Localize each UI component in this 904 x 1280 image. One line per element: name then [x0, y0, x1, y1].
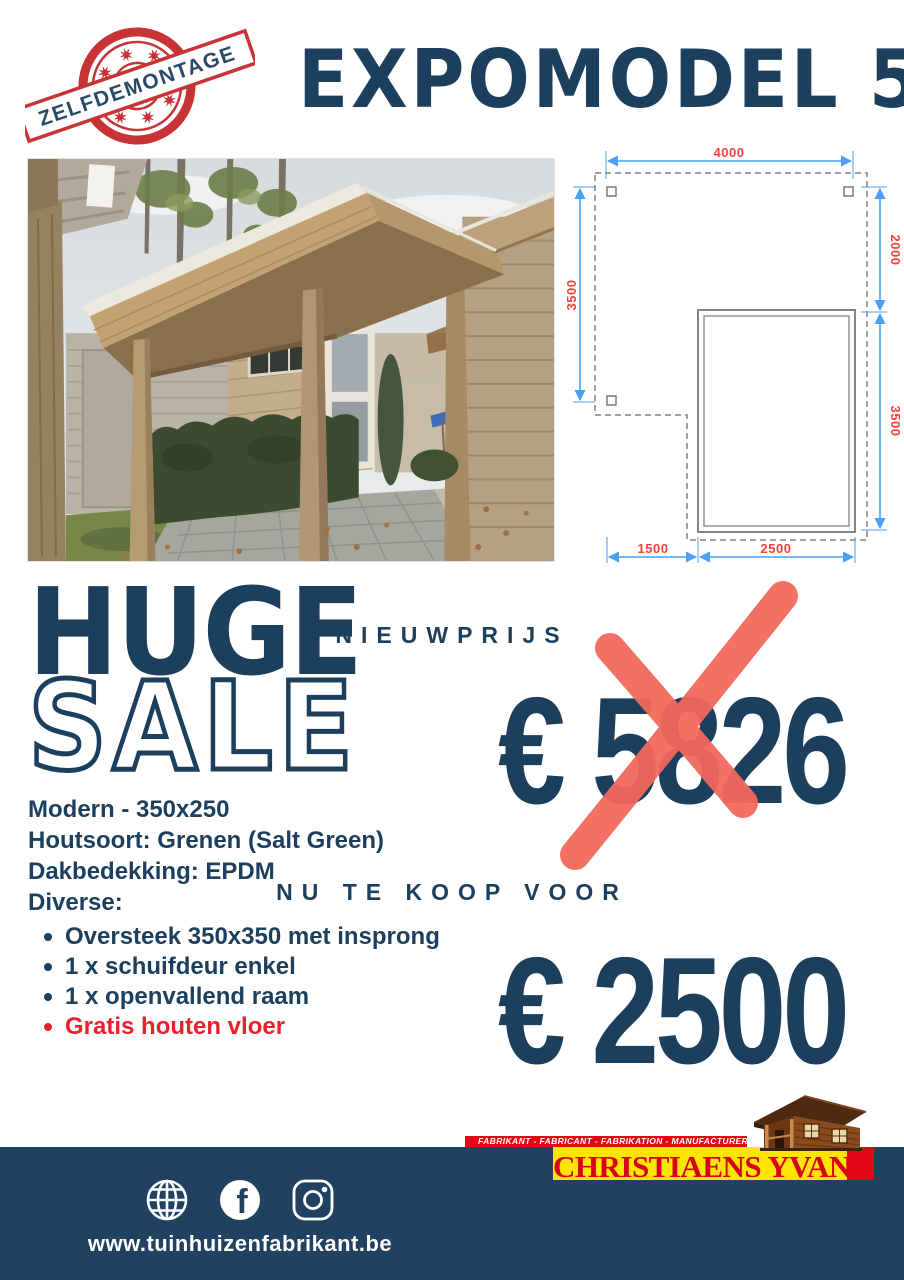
old-price: € 5826 [496, 675, 848, 827]
dim-bottom-left-label: 1500 [638, 541, 669, 556]
product-specs: Modern - 350x250 Houtsoort: Grenen (Salt… [28, 794, 458, 1042]
brand-strip: FABRIKANT - FABRICANT - FABRIKATION - MA… [465, 1136, 747, 1147]
footer-social-icons: f [122, 1172, 358, 1228]
brand-name: CHRISTIAENS YVAN [553, 1149, 851, 1184]
brand-house-illustration [748, 1092, 870, 1154]
globe-icon[interactable] [148, 1181, 186, 1219]
dim-bottom-right-label: 2500 [761, 541, 792, 556]
spec-bullet-list: Oversteek 350x350 met insprong 1 x schui… [28, 922, 458, 1042]
spec-bullet-free-floor: Gratis houten vloer [28, 1012, 458, 1042]
bullet-dot [44, 993, 52, 1001]
bullet-dot [44, 1023, 52, 1031]
website-url[interactable]: www.tuinhuizenfabrikant.be [0, 1231, 480, 1257]
building-outer-wall [698, 310, 855, 532]
spec-model: Modern - 350x250 [28, 794, 458, 825]
sale-headline-sale: SALE [28, 666, 359, 788]
old-price-label: NIEUWPRIJS [0, 622, 904, 649]
stamp-text: ZELFDEMONTAGE [36, 42, 239, 131]
flyer-page: ZELFDEMONTAGE EXPOMODEL 5 [0, 0, 904, 1280]
photo-illustration [28, 159, 554, 561]
new-price-label: NU TE KOOP VOOR [0, 879, 904, 906]
dim-left-label: 3500 [565, 280, 579, 311]
spec-wood: Houtsoort: Grenen (Salt Green) [28, 825, 458, 856]
foreground-post [28, 201, 66, 561]
svg-text:f: f [236, 1183, 248, 1221]
product-photo [27, 158, 555, 562]
spec-bullet: 1 x openvallend raam [28, 982, 458, 1012]
spec-bullet: 1 x schuifdeur enkel [28, 952, 458, 982]
bullet-dot [44, 933, 52, 941]
spec-bullet: Oversteek 350x350 met insprong [28, 922, 458, 952]
bullet-dot [44, 963, 52, 971]
climbing-plant [378, 354, 404, 485]
floorplan-diagram: 4000 2000 3500 3500 1500 2500 [565, 145, 904, 580]
dim-top-label: 4000 [714, 145, 745, 160]
bush [411, 450, 459, 482]
zelfdemontage-stamp: ZELFDEMONTAGE [25, 18, 255, 154]
instagram-icon[interactable] [294, 1181, 332, 1219]
dim-right-lower-label: 3500 [888, 406, 903, 437]
dim-right-upper-label: 2000 [888, 235, 903, 266]
facebook-icon[interactable]: f [220, 1180, 260, 1221]
page-title: EXPOMODEL 5 [298, 40, 850, 120]
new-price: € 2500 [496, 935, 848, 1087]
